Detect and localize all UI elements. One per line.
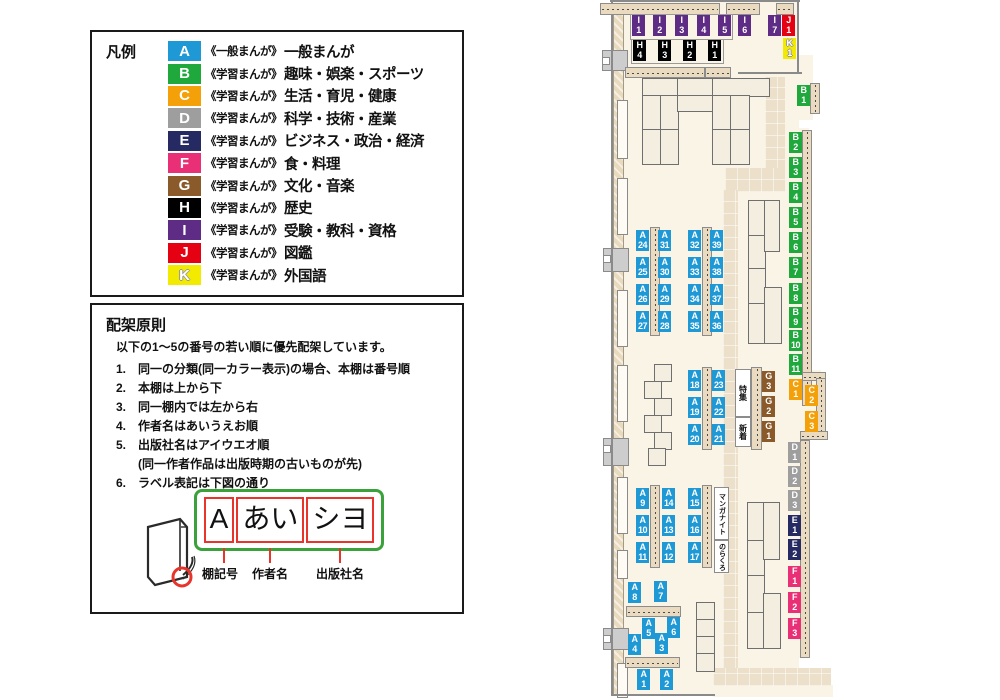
shelf-label-A24: A24 [636,230,649,251]
table [642,95,662,131]
legend-swatch-C: C [168,86,201,106]
shelf-label-K1: K1 [783,38,796,59]
legend-item-C: C《学習まんが》生活・育児・健康 [168,85,424,107]
area-label-のらくろ: のらくろ [714,540,729,573]
principle-rule: 3.同一棚内では左から右 [116,398,410,417]
legend-swatch-D: D [168,108,201,128]
table [644,381,662,399]
shelf-label-B5: B5 [789,207,802,228]
wall [797,0,799,74]
shelf-label-F1: F1 [788,566,801,587]
shelf-label-B10: B10 [789,330,802,351]
table [730,95,750,131]
shelf-label-D3: D3 [788,490,801,511]
shelf-label-I1: I1 [632,15,645,36]
legend-rows: A《一般まんが》一般まんがB《学習まんが》趣味・娯楽・スポーツC《学習まんが》生… [168,40,424,286]
legend-item-A: A《一般まんが》一般まんが [168,40,424,62]
shelf-label-A18: A18 [688,370,701,391]
pointer-line [339,548,341,563]
shelf-label-A35: A35 [688,311,701,332]
shelf-label-D1: D1 [788,442,801,463]
legend-category: 文化・音楽 [284,175,354,196]
shelf-label-G3: G3 [762,371,775,392]
shelf-label-A8: A8 [628,582,641,603]
shelf-label-F2: F2 [788,592,801,613]
shelf-strip [705,67,731,78]
legend-title: 凡例 [106,41,136,62]
window [617,477,628,534]
shelf-label-A16: A16 [688,515,701,536]
table [644,415,662,433]
shelf-label-A3: A3 [655,633,668,654]
door [603,438,629,466]
shelf-code-label: 棚記号 [202,565,238,582]
legend-series: 《学習まんが》 [205,88,282,104]
legend-item-K: K《学習まんが》外国語 [168,264,424,286]
publisher-name-label: 出版社名 [316,565,364,582]
label-diagram: A あい シヨ 棚記号 作者名 出版社名 [92,483,458,608]
author-name-label: 作者名 [252,565,288,582]
legend-category: 趣味・娯楽・スポーツ [284,63,424,84]
table [763,593,781,649]
area-label-特集: 特集 [735,369,751,417]
shelf-label-A22: A22 [712,397,725,418]
legend-series: 《学習まんが》 [205,66,282,82]
principles-panel: 配架原則 以下の1〜5の番号の若い順に優先配架しています。 1.同一の分類(同一… [90,303,464,614]
shelf-strip [625,67,705,78]
shelf-strip [800,440,810,658]
shelf-label-H2: H2 [683,40,696,61]
wall [611,694,715,696]
window [617,550,628,579]
legend-category: 外国語 [284,265,326,286]
shelf-label-A11: A11 [636,542,649,563]
legend-item-F: F《学習まんが》食・料理 [168,152,424,174]
legend-series: 《学習まんが》 [205,267,282,283]
shelf-label-A20: A20 [688,424,701,445]
floor-map: I1I2I3I4I5I6I7J1K1H4H3H2H1B1B2B3B4B5B6B7… [588,0,850,700]
shelf-label-A10: A10 [636,515,649,536]
pointer-line [269,548,271,563]
floor-area [713,685,833,697]
legend-series: 《学習まんが》 [205,133,282,149]
shelf-label-B2: B2 [789,132,802,153]
legend-swatch-G: G [168,176,201,196]
legend-category: 受験・教科・資格 [284,220,396,241]
shelf-label-A5: A5 [642,618,655,639]
table [763,502,780,560]
shelf-label-C2: C2 [805,385,818,406]
table [677,95,714,112]
shelf-strip [776,3,794,15]
shelf-label-A9: A9 [636,488,649,509]
window [617,178,628,235]
shelf-label-B3: B3 [789,157,802,178]
principles-rules: 1.同一の分類(同一カラー表示)の場合、本棚は番号順2.本棚は上から下3.同一棚… [116,360,410,493]
legend-category: 図鑑 [284,242,312,263]
shelf-label-A27: A27 [636,311,649,332]
shelf-label-A28: A28 [658,311,671,332]
shelf-label-A37: A37 [710,284,723,305]
shelf-label-A29: A29 [658,284,671,305]
wall [610,0,800,2]
shelf-label-A13: A13 [662,515,675,536]
shelf-label-I5: I5 [718,15,731,36]
shelf-label-H3: H3 [658,40,671,61]
table [712,95,732,131]
table [712,129,732,165]
legend-item-H: H《学習まんが》歴史 [168,197,424,219]
hallway-floor [725,168,785,192]
legend-category: 一般まんが [284,41,354,62]
library-manga-floor-guide: { "legend": { "title": "凡例", "items": [ … [0,0,1000,700]
shelf-label-D2: D2 [788,466,801,487]
shelf-label-A32: A32 [688,230,701,251]
shelf-label-B11: B11 [789,354,802,375]
shelf-strip [702,485,712,568]
shelf-label-A2: A2 [660,669,673,690]
shelf-label-B8: B8 [789,283,802,304]
shelf-label-A23: A23 [712,370,725,391]
shelf-label-A17: A17 [688,542,701,563]
shelf-strip [650,485,660,568]
table [764,287,782,344]
legend-swatch-F: F [168,153,201,173]
shelf-label-A4: A4 [628,634,641,655]
shelf-label-A15: A15 [688,488,701,509]
shelf-strip [810,83,820,114]
legend-swatch-H: H [168,198,201,218]
legend-series: 《一般まんが》 [205,43,282,59]
principles-intro: 以下の1〜5の番号の若い順に優先配架しています。 [116,338,392,355]
principle-rule: 2.本棚は上から下 [116,379,410,398]
shelf-label-F3: F3 [788,618,801,639]
legend-series: 《学習まんが》 [205,200,282,216]
window [617,290,628,347]
legend-swatch-B: B [168,64,201,84]
shelf-label-B1: B1 [797,85,810,106]
table [696,653,715,672]
shelf-label-B7: B7 [789,257,802,278]
shelf-label-A31: A31 [658,230,671,251]
shelf-label-A1: A1 [637,669,650,690]
shelf-label-A12: A12 [662,542,675,563]
legend-series: 《学習まんが》 [205,110,282,126]
principle-rule: (同一作者作品は出版時期の古いものが先) [116,455,410,474]
legend-panel: 凡例 A《一般まんが》一般まんがB《学習まんが》趣味・娯楽・スポーツC《学習まん… [90,30,464,297]
pointer-line [223,548,225,563]
legend-item-J: J《学習まんが》図鑑 [168,242,424,264]
legend-series: 《学習まんが》 [205,155,282,171]
shelf-strip [702,367,712,450]
shelf-label-A14: A14 [662,488,675,509]
shelf-label-A33: A33 [688,257,701,278]
shelf-label-I7: I7 [768,15,781,36]
window [617,100,628,159]
shelf-label-C1: C1 [789,379,802,400]
legend-category: 生活・育児・健康 [284,85,396,106]
legend-item-B: B《学習まんが》趣味・娯楽・スポーツ [168,62,424,84]
shelf-label-I4: I4 [697,15,710,36]
window [617,365,628,422]
shelf-label-I3: I3 [675,15,688,36]
legend-swatch-I: I [168,220,201,240]
shelf-label-I6: I6 [738,15,751,36]
area-label-マンガナイト: マンガナイト [714,487,729,540]
shelf-label-A34: A34 [688,284,701,305]
principle-rule: 5.出版社名はアイウエオ順 [116,436,410,455]
shelf-strip [800,431,828,440]
shelf-label-A39: A39 [710,230,723,251]
table [642,129,662,165]
table [654,398,672,416]
legend-category: 食・料理 [284,153,340,174]
label-shelf-code-box: A [204,497,235,543]
table [764,200,780,252]
label-author-box: あい [236,497,304,543]
shelf-label-J1: J1 [782,15,795,36]
table [654,364,672,382]
shelf-label-A7: A7 [654,581,667,602]
shelf-strip [802,130,812,406]
legend-item-I: I《学習まんが》受験・教科・資格 [168,219,424,241]
shelf-label-E1: E1 [788,515,801,536]
legend-item-G: G《学習まんが》文化・音楽 [168,174,424,196]
area-label-新着: 新着 [735,417,751,447]
shelf-label-B9: B9 [789,307,802,328]
shelf-strip [751,367,762,450]
shelf-strip [625,657,680,668]
shelf-label-C3: C3 [805,411,818,432]
shelf-label-G2: G2 [762,396,775,417]
legend-category: 歴史 [284,197,312,218]
shelf-label-A38: A38 [710,257,723,278]
shelf-label-A21: A21 [712,424,725,445]
shelf-label-A30: A30 [658,257,671,278]
shelf-label-G1: G1 [762,421,775,442]
label-example-frame: A あい シヨ [194,489,384,551]
shelf-strip [626,606,681,617]
legend-item-E: E《学習まんが》ビジネス・政治・経済 [168,130,424,152]
principle-rule: 1.同一の分類(同一カラー表示)の場合、本棚は番号順 [116,360,410,379]
legend-swatch-E: E [168,131,201,151]
legend-series: 《学習まんが》 [205,178,282,194]
shelf-label-H4: H4 [633,40,646,61]
principles-title: 配架原則 [106,314,166,335]
shelf-label-A25: A25 [636,257,649,278]
legend-category: 科学・技術・産業 [284,108,396,129]
shelf-label-A6: A6 [667,617,680,638]
door [603,628,629,650]
window [617,663,628,698]
label-publisher-box: シヨ [306,497,374,543]
wall [611,0,613,696]
shelf-label-B6: B6 [789,232,802,253]
table [660,129,679,165]
principle-rule: 4.作者名はあいうえお順 [116,417,410,436]
shelf-label-H1: H1 [708,40,721,61]
shelf-label-B4: B4 [789,182,802,203]
table [730,129,750,165]
shelf-label-I2: I2 [653,15,666,36]
shelf-label-E2: E2 [788,539,801,560]
legend-series: 《学習まんが》 [205,222,282,238]
wall [738,72,802,74]
shelf-label-A19: A19 [688,397,701,418]
shelf-label-A26: A26 [636,284,649,305]
legend-item-D: D《学習まんが》科学・技術・産業 [168,107,424,129]
hallway-floor [713,668,831,686]
table [648,448,666,466]
legend-swatch-A: A [168,41,201,61]
legend-swatch-J: J [168,243,201,263]
legend-swatch-K: K [168,265,201,285]
shelf-label-A36: A36 [710,311,723,332]
legend-series: 《学習まんが》 [205,245,282,261]
legend-category: ビジネス・政治・経済 [284,130,424,151]
door [603,248,629,272]
